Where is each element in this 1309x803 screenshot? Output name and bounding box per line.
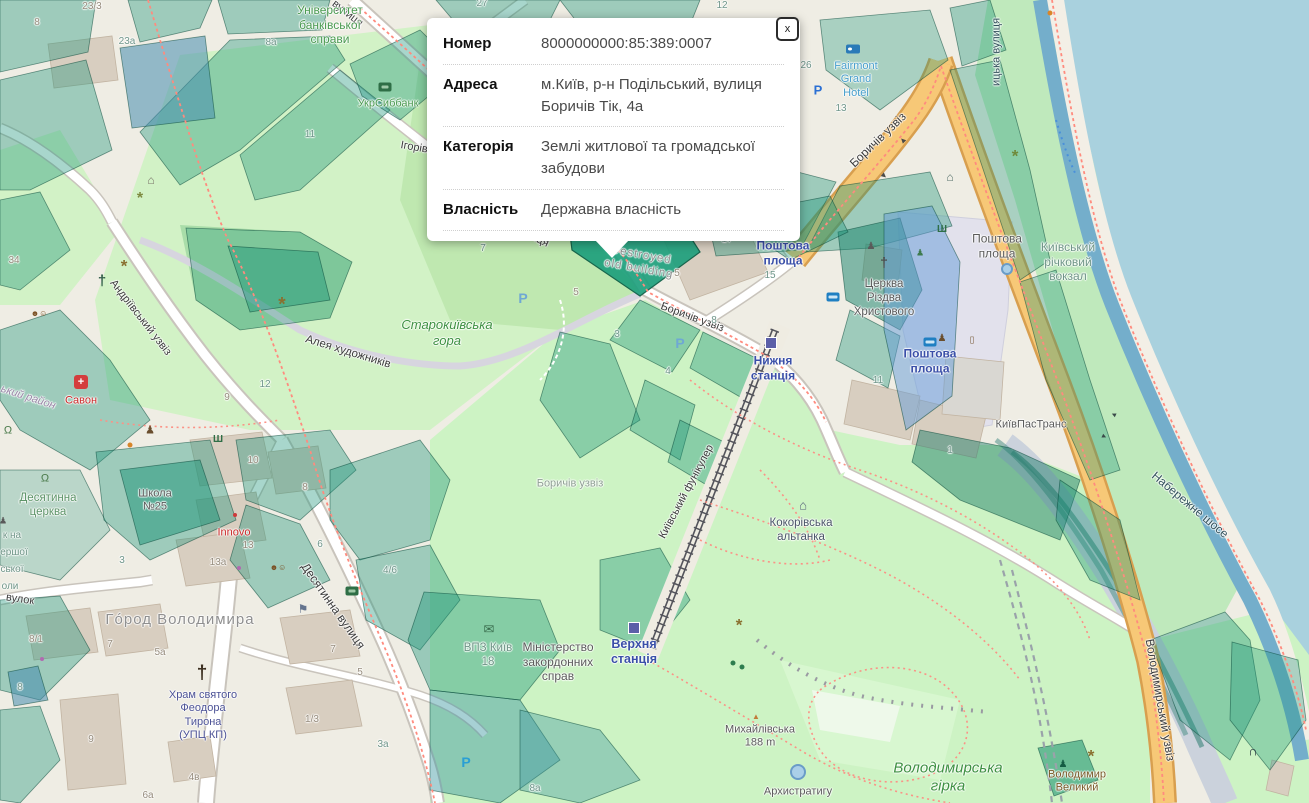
- popup-row-value: Державна власність: [541, 199, 681, 221]
- popup-row-label: Адреса: [443, 74, 541, 118]
- popup-pointer-arrow: [595, 240, 629, 258]
- popup-row-label: Категорія: [443, 136, 541, 180]
- popup-row-number: Номер 8000000000:85:389:0007: [443, 24, 784, 65]
- popup-row-value: м.Київ, р-н Подільський, вулиця Боричів …: [541, 74, 784, 118]
- popup-row-ownership: Власність Державна власність: [443, 190, 784, 231]
- cadastral-map-viewport[interactable]: вулицяБоричів Тік вулицяБоричів узвізБор…: [0, 0, 1309, 803]
- popup-row-label: Власність: [443, 199, 541, 221]
- parcel-info-popup: x Номер 8000000000:85:389:0007 Адреса м.…: [427, 18, 800, 241]
- popup-row-address: Адреса м.Київ, р-н Подільський, вулиця Б…: [443, 65, 784, 128]
- popup-row-category: Категорія Землі житлової та громадської …: [443, 127, 784, 190]
- popup-row-value: 8000000000:85:389:0007: [541, 33, 712, 55]
- popup-close-button[interactable]: x: [776, 17, 799, 41]
- popup-row-label: Номер: [443, 33, 541, 55]
- popup-row-value: Землі житлової та громадської забудови: [541, 136, 784, 180]
